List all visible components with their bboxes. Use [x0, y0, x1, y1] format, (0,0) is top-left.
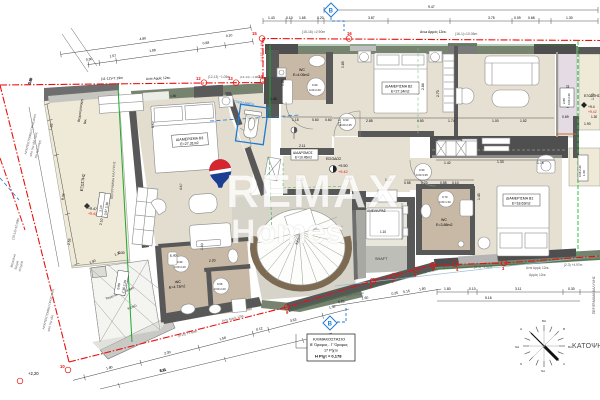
svg-text:3.11: 3.11	[515, 287, 521, 291]
svg-text:Αντε Αρμίς 12εκ.: Αντε Αρμίς 12εκ.	[146, 76, 171, 81]
svg-text:1.90: 1.90	[584, 122, 591, 126]
svg-text:0.00 1.30: 0.00 1.30	[439, 200, 451, 204]
svg-text:+9.4: +9.4	[588, 105, 595, 109]
svg-text:2.88: 2.88	[562, 98, 566, 104]
svg-text:1.30: 1.30	[118, 251, 125, 255]
svg-text:ΝΔ: ΝΔ	[515, 345, 519, 349]
svg-text:B: B	[328, 321, 333, 327]
svg-text:1.60: 1.60	[361, 296, 368, 301]
svg-text:3.63: 3.63	[290, 317, 298, 323]
svg-text:0.30: 0.30	[27, 77, 33, 85]
svg-text:0.00 2.35: 0.00 2.35	[340, 123, 352, 127]
svg-text:0.00 3.35: 0.00 3.35	[416, 173, 428, 177]
svg-text:1.00: 1.00	[492, 119, 499, 123]
svg-text:0.85: 0.85	[341, 61, 345, 68]
svg-text:WC: WC	[441, 218, 447, 222]
svg-text:+2,20: +2,20	[28, 371, 39, 376]
svg-text:Ν: Ν	[520, 362, 522, 366]
svg-text:1.98: 1.98	[149, 48, 156, 53]
svg-text:1.43: 1.43	[268, 16, 275, 20]
svg-text:(13-14) −1.98m: (13-14) −1.98m	[240, 75, 261, 79]
svg-text:Αρμός 12εκ.: Αρμός 12εκ.	[529, 273, 547, 277]
svg-text:0.30: 0.30	[568, 287, 575, 291]
svg-text:0.00 2.20: 0.00 2.20	[174, 265, 186, 269]
svg-text:3.87: 3.87	[368, 16, 375, 20]
svg-text:B: B	[329, 8, 334, 14]
svg-text:0.70: 0.70	[421, 181, 428, 185]
svg-text:(11-12)=7.19m: (11-12)=7.19m	[101, 76, 123, 81]
svg-text:2.30: 2.30	[164, 350, 172, 356]
svg-text:0.66: 0.66	[217, 282, 223, 286]
svg-text:0.10: 0.10	[452, 181, 459, 185]
svg-text:ΝΑ: ΝΑ	[541, 369, 545, 373]
svg-text:2.73: 2.73	[436, 90, 440, 97]
svg-text:1.42: 1.42	[444, 161, 451, 165]
svg-text:(10-11)=10.08m: (10-11)=10.08m	[11, 217, 20, 240]
svg-text:ΔΙΑΜΕΡΙΣΜΑ Β2: ΔΙΑΜΕΡΙΣΜΑ Β2	[385, 85, 412, 89]
svg-text:1.80: 1.80	[170, 94, 177, 98]
svg-text:1.40: 1.40	[200, 243, 204, 250]
svg-text:0.15: 0.15	[403, 289, 410, 294]
svg-text:Ε=27.34m2: Ε=27.34m2	[391, 89, 409, 93]
svg-text:9.47: 9.47	[428, 5, 435, 9]
svg-text:1.30: 1.30	[566, 16, 573, 20]
svg-text:ΔΙΑΜΕΡΙΣΜΑ Β1: ΔΙΑΜΕΡΙΣΜΑ Β1	[506, 197, 533, 201]
svg-text:2.20: 2.20	[209, 258, 216, 263]
svg-text:0.60: 0.60	[312, 118, 319, 122]
svg-text:2.85: 2.85	[366, 119, 373, 123]
svg-text:3.11: 3.11	[159, 368, 166, 373]
svg-text:0.55: 0.55	[440, 181, 447, 185]
svg-text:(9-10) +7.69m: (9-10) +7.69m	[177, 329, 198, 338]
svg-text:Δ: Δ	[520, 327, 522, 331]
svg-text:ΚΛΙΜΑΚΟΣΤΑΣΙΟ: ΚΛΙΜΑΚΟΣΤΑΣΙΟ	[313, 337, 345, 342]
svg-text:0.68: 0.68	[528, 16, 535, 20]
svg-text:REMAX: REMAX	[226, 165, 400, 217]
svg-text:0.80: 0.80	[281, 79, 285, 86]
svg-text:0.30: 0.30	[86, 57, 93, 62]
svg-text:0.25: 0.25	[391, 291, 398, 296]
svg-text:0.10: 0.10	[226, 33, 233, 38]
svg-text:ΕΞΩΣΤΗΣ: ΕΞΩΣΤΗΣ	[584, 94, 600, 98]
svg-text:(15-16) ≈2.90m: (15-16) ≈2.90m	[302, 30, 325, 34]
svg-text:0.20: 0.20	[317, 16, 324, 20]
svg-text:ΒΔ: ΒΔ	[542, 319, 546, 323]
svg-text:Η Ρίχτ = 0,178: Η Ρίχτ = 0,178	[315, 354, 342, 359]
svg-text:0.00 2.40: 0.00 2.40	[567, 93, 571, 105]
svg-text:10: 10	[60, 364, 65, 369]
svg-text:5.52: 5.52	[151, 121, 155, 128]
svg-text:8εκ.: 8εκ.	[83, 118, 88, 124]
svg-text:16: 16	[347, 31, 352, 36]
svg-text:2.11: 2.11	[299, 144, 305, 148]
svg-text:0.10: 0.10	[469, 287, 476, 291]
svg-text:Αντε Αρμίς 12εκ.: Αντε Αρμίς 12εκ.	[526, 266, 550, 270]
svg-text:0.70: 0.70	[442, 195, 448, 199]
svg-text:0.60: 0.60	[325, 118, 332, 122]
svg-text:SHAFT: SHAFT	[375, 257, 388, 261]
svg-text:1.58: 1.58	[219, 336, 227, 342]
svg-text:1.57: 1.57	[109, 54, 116, 59]
svg-text:4.67: 4.67	[179, 183, 183, 190]
svg-text:Β: Β	[563, 327, 565, 331]
svg-text:1.52: 1.52	[520, 119, 527, 123]
svg-text:1.74: 1.74	[448, 119, 455, 123]
svg-text:Ανωι Αρμός 12εκ.: Ανωι Αρμός 12εκ.	[420, 30, 447, 34]
svg-text:(14-15) ≈1.48m: (14-15) ≈1.48m	[260, 40, 264, 62]
svg-text:0.25: 0.25	[338, 299, 345, 304]
svg-text:Ε=18.63m2: Ε=18.63m2	[512, 201, 530, 205]
svg-text:5.16: 5.16	[485, 296, 492, 300]
svg-text:ΠΕΡΙΓΡΑΜΜΑ ΚΑΛΥΨΗΣ: ΠΕΡΙΓΡΑΜΜΑ ΚΑΛΥΨΗΣ	[592, 276, 596, 314]
svg-text:1.65: 1.65	[299, 16, 306, 20]
svg-text:0.10: 0.10	[286, 16, 293, 20]
svg-text:1.60: 1.60	[582, 170, 586, 176]
svg-text:Β' Όροφος - Γ' Όροφος: Β' Όροφος - Γ' Όροφος	[310, 343, 348, 347]
svg-text:Ε=10.45m2: Ε=10.45m2	[295, 156, 312, 160]
svg-text:0.08 2.40: 0.08 2.40	[578, 165, 582, 177]
svg-text:0.68: 0.68	[202, 41, 209, 46]
svg-text:Αντε Αρμίς 12εκ.: Αντε Αρμίς 12εκ.	[221, 313, 245, 323]
svg-text:0.90: 0.90	[312, 83, 318, 87]
svg-text:17 Ρίχτυ: 17 Ρίχτυ	[324, 349, 338, 353]
svg-text:0.00 2.20: 0.00 2.20	[309, 88, 321, 92]
svg-text:(2-3) +4.97m: (2-3) +4.97m	[564, 263, 583, 267]
svg-text:Α: Α	[563, 362, 565, 366]
svg-text:(12-13) −1.05m: (12-13) −1.05m	[208, 75, 230, 79]
svg-text:1.80: 1.80	[419, 286, 426, 291]
svg-text:1.43: 1.43	[477, 193, 481, 200]
svg-text:(3-4) −1.41m: (3-4) −1.41m	[474, 265, 493, 269]
svg-text:Ε=3.88m2: Ε=3.88m2	[436, 223, 452, 227]
svg-text:WC: WC	[299, 68, 305, 72]
svg-text:3.75: 3.75	[488, 16, 495, 20]
svg-text:1.15: 1.15	[292, 118, 299, 122]
svg-text:0.55: 0.55	[404, 181, 411, 185]
svg-text:0.00 2.20: 0.00 2.20	[214, 287, 226, 291]
svg-text:0.90: 0.90	[419, 168, 425, 172]
svg-text:1.80: 1.80	[106, 365, 114, 371]
svg-text:1.80: 1.80	[444, 287, 451, 291]
svg-text:4.80: 4.80	[139, 36, 146, 41]
svg-text:15: 15	[252, 31, 257, 36]
svg-text:1.43: 1.43	[270, 97, 277, 101]
svg-text:Ε=4.06m2: Ε=4.06m2	[293, 73, 309, 77]
svg-text:2.84: 2.84	[421, 83, 425, 90]
svg-text:0.69: 0.69	[562, 115, 569, 119]
svg-text:+9.42: +9.42	[588, 110, 597, 114]
svg-text:0.12: 0.12	[256, 326, 264, 332]
svg-text:0.09: 0.09	[514, 16, 521, 20]
svg-text:Homes: Homes	[231, 213, 344, 251]
svg-text:0.90: 0.90	[343, 118, 349, 122]
svg-text:ΚΑΤΟΨΗ: ΚΑΤΟΨΗ	[572, 343, 600, 350]
svg-text:6.40: 6.40	[170, 253, 177, 258]
svg-text:1.33: 1.33	[497, 160, 504, 164]
svg-text:1.35: 1.35	[328, 304, 336, 310]
svg-text:1.75: 1.75	[537, 161, 544, 165]
svg-text:12: 12	[196, 76, 201, 81]
svg-text:ΔΙΑΔΡΟΜΟΣ: ΔΙΑΔΡΟΜΟΣ	[293, 151, 313, 155]
svg-text:0.90: 0.90	[177, 260, 183, 264]
svg-text:ΕΙΣΟΔΟΣ: ΕΙΣΟΔΟΣ	[326, 157, 342, 161]
svg-text:1.10: 1.10	[380, 230, 386, 234]
svg-text:(16-1)=10.06m: (16-1)=10.06m	[455, 32, 478, 36]
svg-text:1.30: 1.30	[591, 115, 597, 119]
